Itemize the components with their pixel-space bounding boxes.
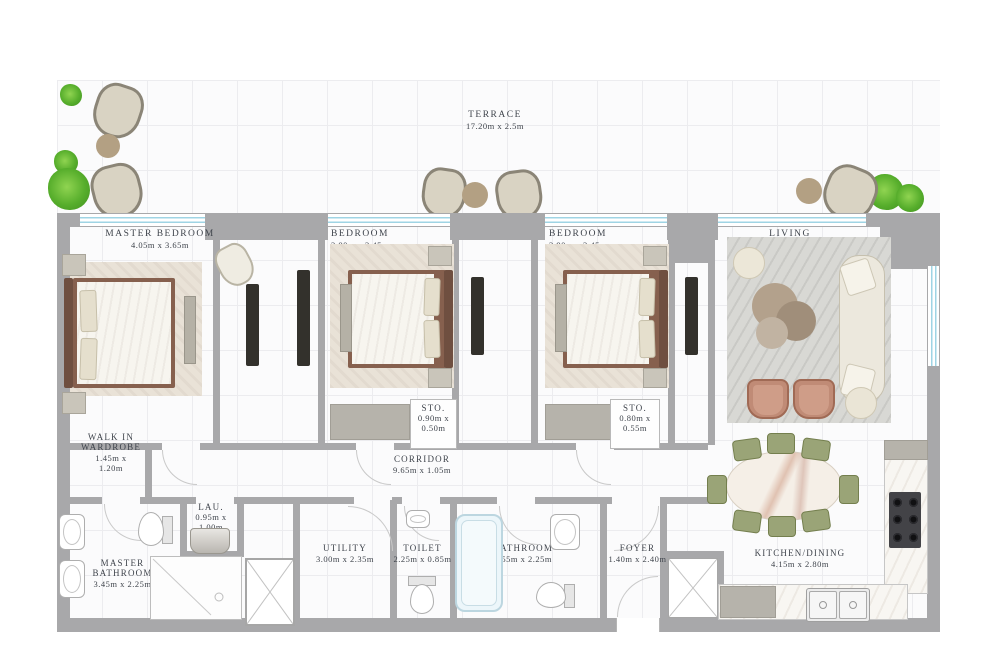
wall [708,227,715,445]
dining-chair [839,475,859,504]
dining-chair [732,437,763,462]
side-table [733,247,765,279]
dining-chair [801,508,832,533]
wall [675,227,708,263]
wall [390,500,397,632]
storage-label-wrap: STO. 0.90m x 0.50m [411,403,456,433]
wall [440,497,497,504]
service-shaft [245,558,295,626]
nightstand [643,368,667,388]
toilet [410,584,434,614]
sink-basin [839,591,867,619]
dining-chair [767,433,795,454]
window [545,214,667,226]
burner [893,533,902,542]
bench [184,296,196,364]
burner [893,515,902,524]
sink [59,514,85,550]
room-dims: 0.90m x 0.50m [415,413,453,433]
room-dims: 0.80m x 0.55m [616,413,654,433]
wardrobe [471,277,484,355]
room-name: STO. [411,403,456,413]
coffee-table [756,317,788,349]
bed-pillow [423,320,440,359]
plant [60,84,82,106]
kitchen-sink [806,588,870,622]
built-in-closet [330,404,410,440]
bed-pillow [79,338,97,381]
room-dims: 9.65m x 1.05m [362,465,482,475]
sink [550,514,580,550]
room-name: STO. [611,403,659,413]
kitchen-cabinet [884,440,928,460]
wall [200,443,356,450]
nightstand [62,392,86,414]
sink-basin [809,591,837,619]
room-label-foyer: FOYER 1.40m x 2.40m [595,543,680,564]
room-dims: 3.00m x 2.35m [300,554,390,564]
plant [48,168,90,210]
wall [237,500,244,555]
room-dims: 17.20m x 2.5m [395,121,595,131]
wall [62,497,102,504]
room-label-kitchen-dining: KITCHEN/DINING 4.15m x 2.80m [745,548,855,569]
room-name: MASTER BEDROOM [85,229,235,239]
floor-plan: TERRACE 17.20m x 2.5m [0,0,992,664]
room-label-master-bedroom: MASTER BEDROOM 4.05m x 3.65m [85,229,235,250]
room-dims: 4.05m x 3.65m [85,240,235,250]
bed-duvet [567,274,649,364]
wardrobe [685,277,698,355]
bed-pillow [423,278,440,317]
toilet [138,512,164,546]
room-name: BEDROOM [518,229,638,239]
wardrobe [246,284,259,366]
dining-chair [768,516,796,537]
wall [318,227,325,445]
bathtub [455,514,503,612]
burner [909,498,918,507]
bed-pillow [79,290,97,333]
room-label-storage-2: STO. 0.80m x 0.55m [610,399,660,449]
toilet [536,582,566,608]
room-label-storage-1: STO. 0.90m x 0.50m [410,399,457,449]
wall [531,227,538,445]
bed-headboard [659,270,668,368]
nightstand [428,368,452,388]
room-name: KITCHEN/DINING [745,548,855,558]
room-label-walk-in-wardrobe: WALK IN WARDROBE 1.45m x 1.20m [78,432,144,473]
entry-door-opening [616,618,660,632]
nightstand [62,254,86,276]
room-label-utility: UTILITY 3.00m x 2.35m [300,543,390,564]
terrace-table [462,182,488,208]
dining-chair [801,437,832,462]
bed-pillow [638,320,655,359]
storage-label-wrap: STO. 0.80m x 0.55m [611,403,659,433]
built-in-closet [545,404,611,440]
room-dims: 2.25m x 0.85m [380,554,465,564]
bed-duvet [352,274,434,364]
cooktop [889,492,921,548]
bed-pillow [638,278,655,317]
window [928,266,939,366]
window [80,214,205,226]
room-name: LAU. [184,502,238,512]
room-label-toilet: TOILET 2.25m x 0.85m [380,543,465,564]
dining-chair [732,509,763,534]
room-dims: 4.15m x 2.80m [745,559,855,569]
room-name: TERRACE [395,110,595,120]
room-dims: 1.40m x 2.40m [595,554,680,564]
room-name: BEDROOM [300,229,420,239]
nightstand [428,246,452,266]
room-dims: 1.45m x 1.20m [87,453,135,473]
window [328,214,450,226]
burner [909,533,918,542]
burner [909,515,918,524]
room-name: WALK IN WARDROBE [78,432,144,452]
washing-machine [190,528,230,554]
room-label-corridor: CORRIDOR 9.65m x 1.05m [362,454,482,475]
wall [668,227,675,445]
bed-headboard [444,270,453,368]
bed-headboard [64,278,73,388]
terrace-table [96,134,120,158]
dining-chair [707,475,727,504]
armchair [793,379,835,419]
room-name: TOILET [380,543,465,553]
burner [893,498,902,507]
wardrobe [297,270,310,366]
nightstand [643,246,667,266]
elevator-shaft [668,558,718,618]
room-name: FOYER [595,543,680,553]
room-name: UTILITY [300,543,390,553]
wall [600,500,607,632]
ottoman [845,387,877,419]
sink [59,560,85,598]
wall [145,445,152,501]
room-name: CORRIDOR [362,454,482,464]
fridge [720,586,776,618]
sink [406,510,430,528]
bench [555,284,567,352]
window [718,214,866,226]
armchair [747,379,789,419]
terrace-table [796,178,822,204]
room-label-terrace: TERRACE 17.20m x 2.5m [395,110,595,131]
bench [340,284,352,352]
plant [896,184,924,212]
shower [150,556,242,620]
